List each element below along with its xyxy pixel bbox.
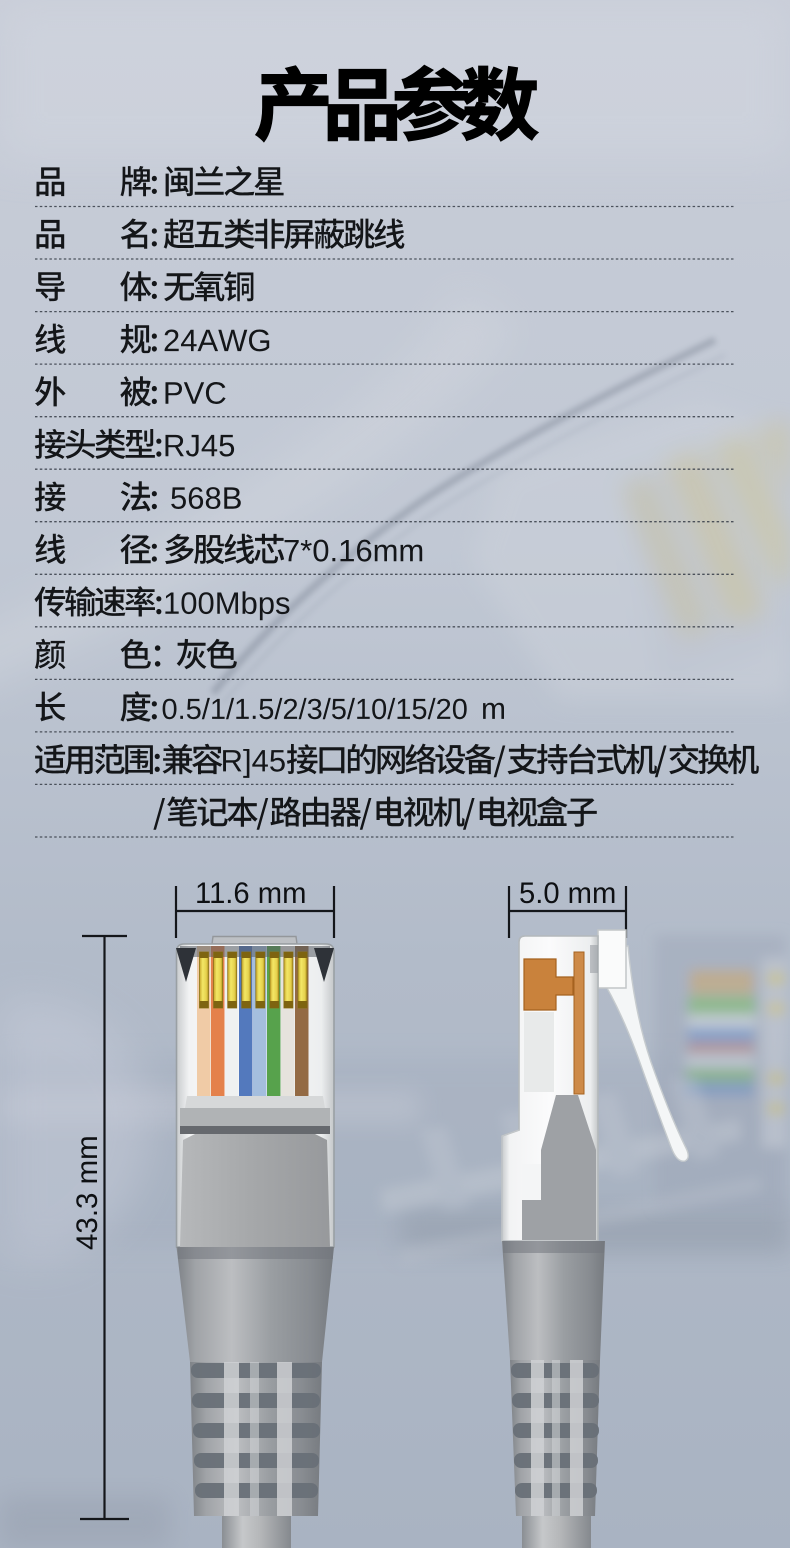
svg-text:5.0 mm: 5.0 mm — [519, 878, 616, 910]
svg-text:43.3 mm: 43.3 mm — [71, 1135, 104, 1250]
svg-text:11.6 mm: 11.6 mm — [195, 878, 306, 910]
